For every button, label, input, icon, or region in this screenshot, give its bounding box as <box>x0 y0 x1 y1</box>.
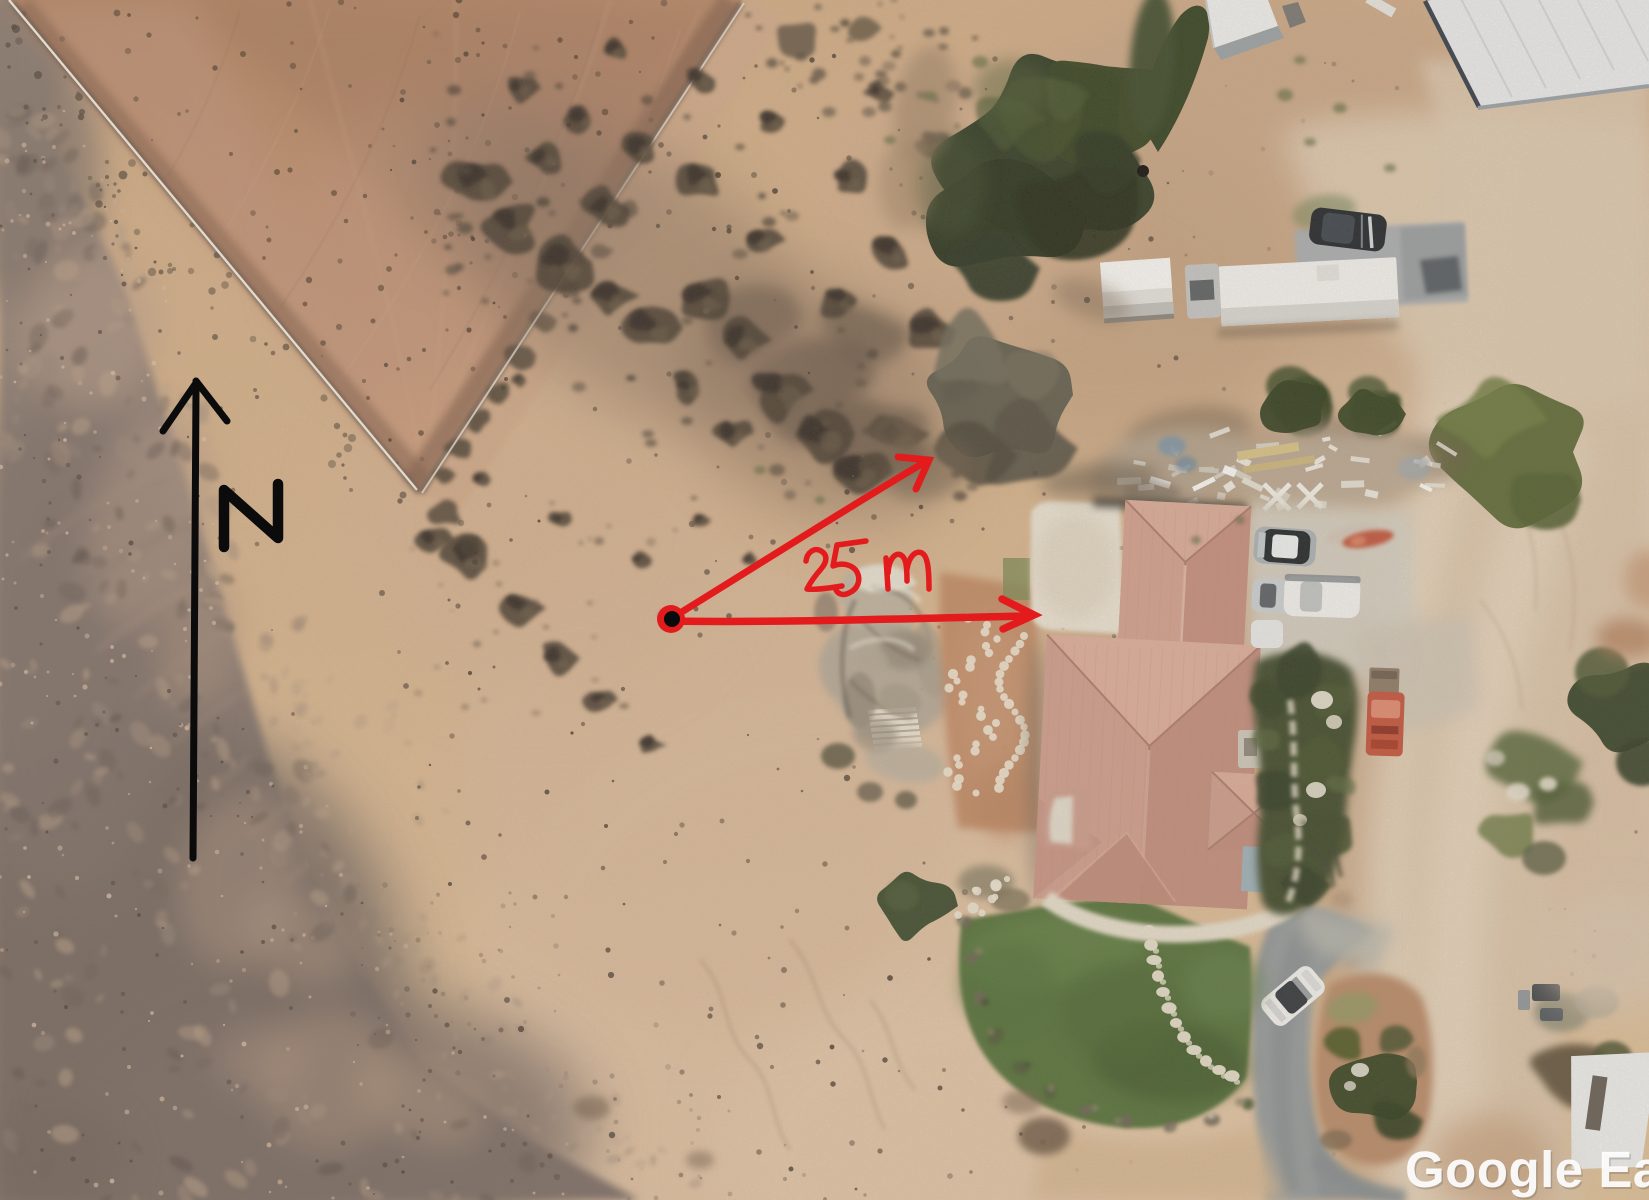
svg-text:Google Ea: Google Ea <box>1405 1141 1649 1198</box>
